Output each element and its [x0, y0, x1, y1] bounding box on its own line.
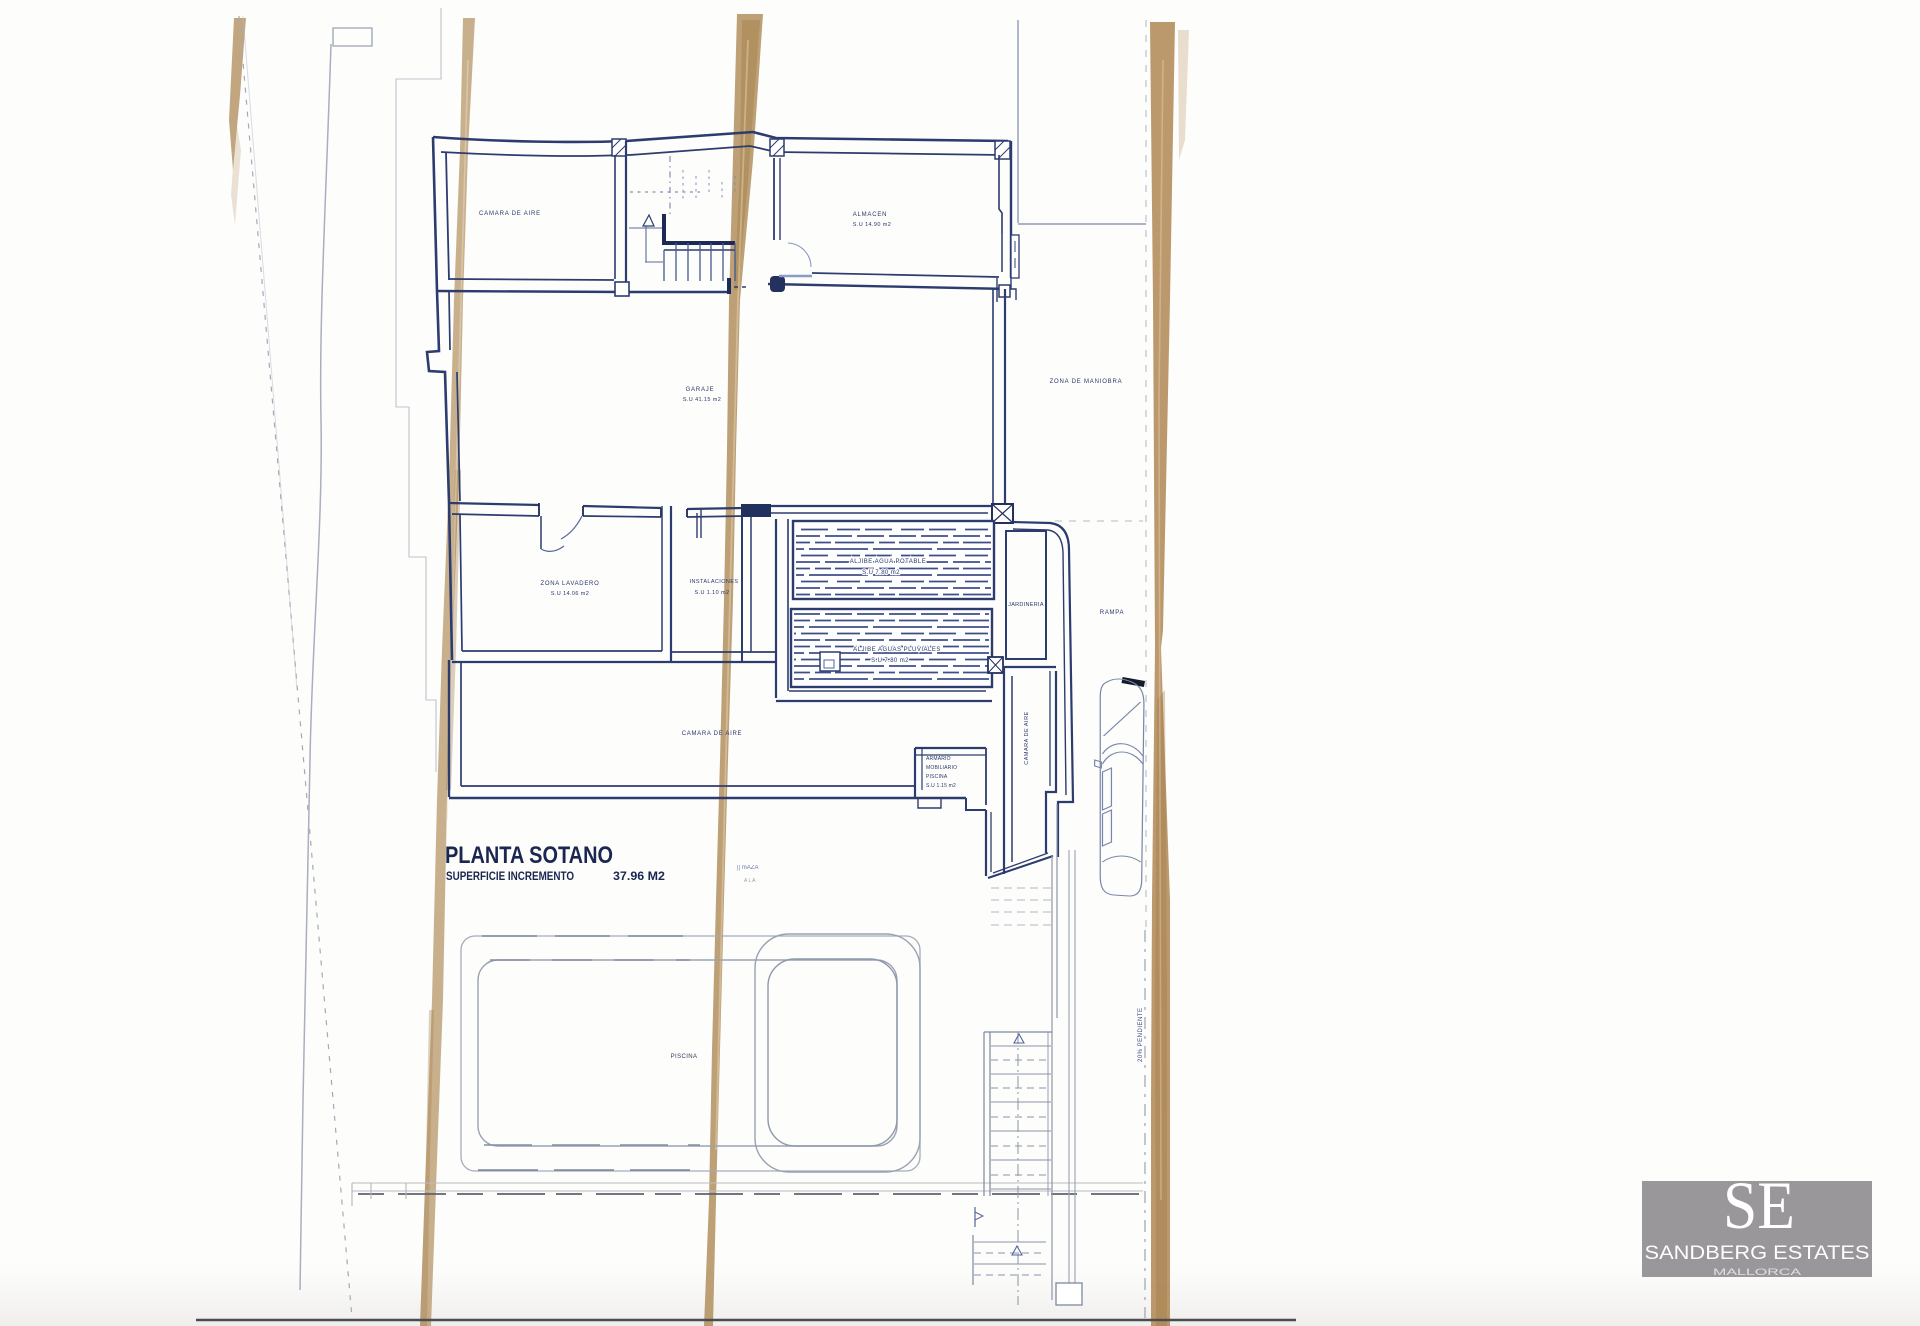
svg-text:RAMPA: RAMPA [1100, 610, 1124, 616]
svg-text:S.U 41.15 m2: S.U 41.15 m2 [683, 397, 721, 403]
svg-text:A L A: A L A [744, 878, 756, 884]
svg-text:|| mAZA: || mAZA [737, 865, 758, 871]
svg-text:INSTALACIONES: INSTALACIONES [690, 579, 739, 585]
svg-text:ALMACEN: ALMACEN [853, 212, 888, 218]
svg-text:37.96 M2: 37.96 M2 [613, 871, 665, 883]
svg-text:PLANTA SOTANO: PLANTA SOTANO [445, 842, 613, 869]
svg-text:ARMARIO: ARMARIO [926, 756, 951, 762]
svg-text:S.U 14.06 m2: S.U 14.06 m2 [551, 591, 589, 597]
svg-text:S.U 1.15 m2: S.U 1.15 m2 [926, 783, 956, 789]
svg-text:MOBILIARIO: MOBILIARIO [926, 765, 957, 771]
svg-text:ZONA LAVADERO: ZONA LAVADERO [541, 581, 600, 587]
svg-text:MALLORCA: MALLORCA [1713, 1267, 1802, 1278]
svg-text:ALJIBE AGUA POTABLE: ALJIBE AGUA POTABLE [850, 559, 926, 565]
svg-text:ALJIBE AGUAS PLUVIALES: ALJIBE AGUAS PLUVIALES [853, 647, 941, 653]
svg-text:CAMARA DE AIRE: CAMARA DE AIRE [479, 211, 541, 217]
svg-text:CAMARA DE AIRE: CAMARA DE AIRE [1024, 711, 1030, 764]
svg-text:SANDBERG ESTATES: SANDBERG ESTATES [1645, 1242, 1870, 1264]
svg-text:GARAJE: GARAJE [686, 387, 715, 393]
svg-text:PISCINA: PISCINA [926, 774, 948, 780]
svg-text:SUPERFICIE INCREMENTO: SUPERFICIE INCREMENTO [446, 871, 574, 883]
svg-text:CAMARA DE AIRE: CAMARA DE AIRE [682, 731, 742, 737]
svg-text:SE: SE [1723, 1167, 1795, 1243]
svg-text:ZONA DE MANIOBRA: ZONA DE MANIOBRA [1050, 379, 1123, 385]
svg-text:PISCINA: PISCINA [671, 1054, 698, 1060]
svg-text:JARDINERIA: JARDINERIA [1008, 602, 1044, 608]
svg-text:S.U 7.80 m2: S.U 7.80 m2 [871, 658, 909, 664]
svg-text:S.U 1.10 m2: S.U 1.10 m2 [695, 590, 730, 596]
svg-text:S.U 7.80 m2: S.U 7.80 m2 [862, 570, 900, 576]
svg-text:20% PENDIENTE: 20% PENDIENTE [1138, 1007, 1144, 1062]
svg-text:S.U 14.90 m2: S.U 14.90 m2 [853, 222, 891, 228]
